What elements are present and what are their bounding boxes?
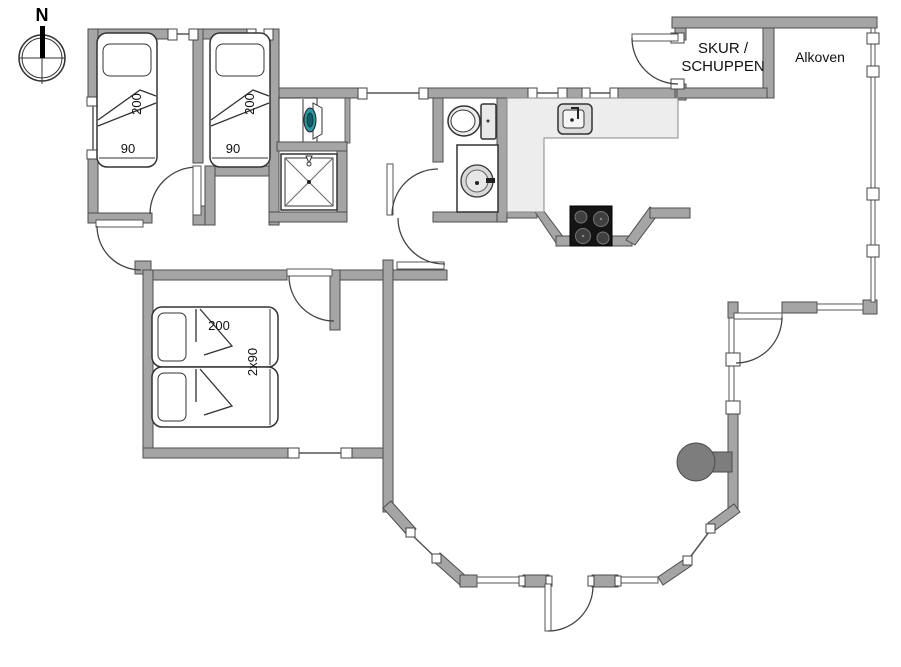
window-cap	[168, 29, 177, 40]
door-swing-arc	[398, 218, 445, 264]
window	[477, 577, 524, 583]
sink-bowl	[563, 110, 584, 128]
wall-segment	[193, 29, 203, 163]
window-cap	[867, 33, 879, 44]
wall-segment	[143, 448, 288, 458]
bed2-width-label: 90	[226, 141, 240, 156]
door-leaf	[193, 166, 201, 215]
toilet	[448, 104, 496, 139]
wall-segment	[88, 158, 98, 222]
floorplan-page: N SKUR / SCHUPPEN Alkoven 200 90 200 90 …	[0, 0, 901, 667]
door-swing-arc	[392, 169, 438, 215]
toilet-bowl-inner	[451, 110, 475, 132]
window-cap	[358, 88, 367, 99]
toilet-button	[487, 120, 490, 123]
wall-segment	[567, 88, 582, 98]
room-label-skur-line2: SCHUPPEN	[681, 58, 764, 75]
wall-segment	[428, 88, 528, 98]
wall-segment	[672, 17, 877, 28]
shower-drain	[307, 180, 311, 184]
wood-stove-body	[677, 443, 715, 481]
window	[618, 577, 658, 583]
window-cap	[419, 88, 428, 99]
wall-segment	[677, 88, 767, 98]
wall-segment	[345, 98, 350, 143]
door-bedroom3	[287, 269, 334, 321]
door-swing-arc	[548, 586, 593, 631]
shower	[281, 154, 337, 210]
window-cap	[610, 88, 618, 99]
door-corridor	[397, 218, 445, 269]
washing-machine	[279, 98, 322, 143]
wall-segment	[650, 208, 690, 218]
door-swing-arc	[150, 167, 197, 214]
wall-segment	[433, 212, 507, 222]
window-cap	[706, 524, 715, 533]
room-label-skur-line1: SKUR /	[698, 40, 749, 57]
window-cap	[406, 528, 415, 537]
window-cap	[588, 576, 594, 586]
door-bay-south	[545, 584, 593, 631]
wall-segment	[205, 166, 215, 225]
wall-segment	[592, 575, 618, 587]
compass: N	[19, 5, 65, 84]
window-cap	[528, 88, 537, 99]
door-swing-arc	[97, 226, 141, 270]
window-cap	[867, 245, 879, 257]
wall-segment	[460, 575, 477, 587]
wall-segment	[433, 98, 443, 162]
room-label-alkoven: Alkoven	[795, 49, 845, 65]
bed2-length-label: 200	[242, 93, 257, 115]
double-bed-width-label: 2x90	[245, 348, 260, 376]
window-cap	[558, 88, 567, 99]
door-bathroom	[387, 164, 438, 215]
washer-shelf	[277, 142, 347, 151]
door-swing-arc	[289, 276, 334, 321]
window-cap	[288, 448, 299, 458]
window-cap	[432, 554, 441, 563]
washbasin	[457, 145, 498, 212]
door-terrace-east	[734, 313, 782, 363]
bed-pillow	[158, 373, 186, 421]
wall-segment	[269, 212, 347, 222]
window-cap	[726, 353, 740, 366]
walls	[88, 17, 877, 587]
wood-stove	[677, 443, 732, 481]
wall-segment	[337, 142, 347, 214]
door-bedroom1	[150, 166, 201, 215]
window-cap	[341, 448, 352, 458]
window-cap	[615, 576, 621, 586]
window-cap	[519, 576, 525, 586]
bed-pillow	[158, 313, 186, 361]
burner-dot	[582, 235, 584, 237]
door-leaf	[632, 34, 678, 41]
bed-pillow	[103, 44, 151, 76]
kitchen-sink	[558, 104, 592, 134]
sink-drain	[570, 118, 574, 122]
bed1-width-label: 90	[121, 141, 135, 156]
stove	[570, 206, 612, 246]
burner-dot	[600, 218, 602, 220]
burner	[575, 211, 587, 223]
window-cap	[867, 188, 879, 200]
wall-segment	[143, 270, 287, 280]
window-cap	[189, 29, 198, 40]
double-bed-length-label: 200	[208, 318, 230, 333]
wall-segment	[782, 302, 817, 313]
door-leaf	[96, 220, 143, 227]
compass-needle	[40, 26, 45, 58]
window-cap	[867, 66, 879, 77]
burner	[597, 232, 609, 244]
door-leaf	[287, 269, 332, 276]
bed-pillow	[216, 44, 264, 76]
washer-drum-inner	[307, 113, 313, 127]
floorplan-drawing: N SKUR / SCHUPPEN Alkoven 200 90 200 90 …	[0, 0, 901, 667]
window	[817, 304, 863, 310]
compass-north-label: N	[36, 5, 49, 25]
door-leaf	[545, 584, 551, 631]
basin-tap-icon	[486, 178, 495, 183]
door-swing-arc	[632, 38, 678, 84]
wall-segment	[383, 260, 393, 512]
window-cap	[683, 556, 692, 565]
window-cap	[726, 401, 740, 414]
furniture	[97, 33, 732, 481]
door-swing-arc	[736, 317, 782, 363]
bed1-length-label: 200	[129, 93, 144, 115]
basin-drain	[475, 181, 479, 185]
window-cap	[582, 88, 590, 99]
door-leaf	[734, 313, 782, 319]
wall-segment	[143, 270, 153, 458]
wall-segment	[618, 88, 677, 98]
shower-head-icon	[307, 162, 311, 166]
door-skur	[632, 34, 678, 84]
wall-segment	[279, 88, 358, 98]
